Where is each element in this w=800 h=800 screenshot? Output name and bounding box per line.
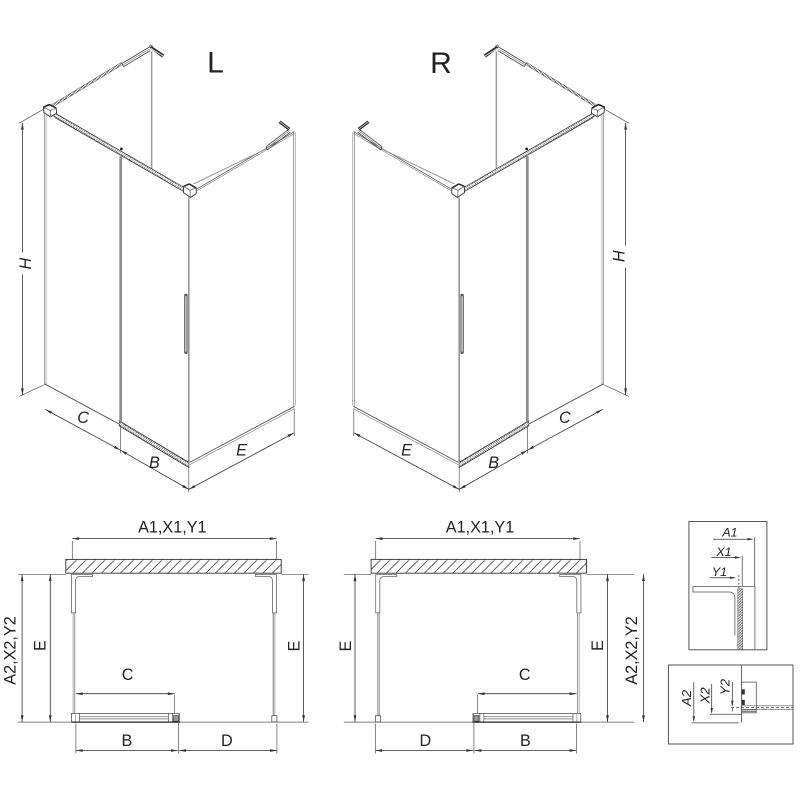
svg-text:B: B [488, 454, 499, 472]
svg-text:D: D [221, 732, 233, 750]
svg-text:L: L [207, 47, 224, 80]
svg-text:E: E [401, 442, 412, 460]
svg-text:Y2: Y2 [718, 678, 733, 695]
svg-text:H: H [17, 257, 35, 269]
svg-text:Y1: Y1 [712, 565, 727, 579]
svg-text:A1: A1 [721, 526, 737, 540]
svg-text:C: C [77, 409, 89, 427]
svg-text:X2: X2 [698, 687, 713, 705]
svg-text:B: B [520, 732, 531, 750]
svg-text:A1,X1,Y1: A1,X1,Y1 [446, 518, 514, 536]
svg-text:C: C [559, 409, 571, 427]
svg-text:E: E [589, 640, 607, 651]
svg-text:B: B [149, 454, 160, 472]
svg-text:R: R [430, 47, 452, 80]
svg-text:A1,X1,Y1: A1,X1,Y1 [138, 518, 206, 536]
svg-text:H: H [610, 250, 628, 262]
svg-text:A2: A2 [679, 689, 694, 707]
svg-text:E: E [286, 641, 304, 652]
svg-text:D: D [420, 732, 432, 750]
svg-text:C: C [519, 666, 531, 684]
svg-text:A2,X2,Y2: A2,X2,Y2 [2, 616, 20, 684]
svg-text:E: E [236, 442, 247, 460]
svg-text:X1: X1 [715, 545, 731, 559]
svg-text:C: C [122, 666, 134, 684]
svg-text:A2,X2,Y2: A2,X2,Y2 [623, 616, 641, 684]
svg-text:E: E [32, 640, 50, 651]
svg-text:E: E [337, 641, 355, 652]
svg-text:B: B [121, 732, 132, 750]
